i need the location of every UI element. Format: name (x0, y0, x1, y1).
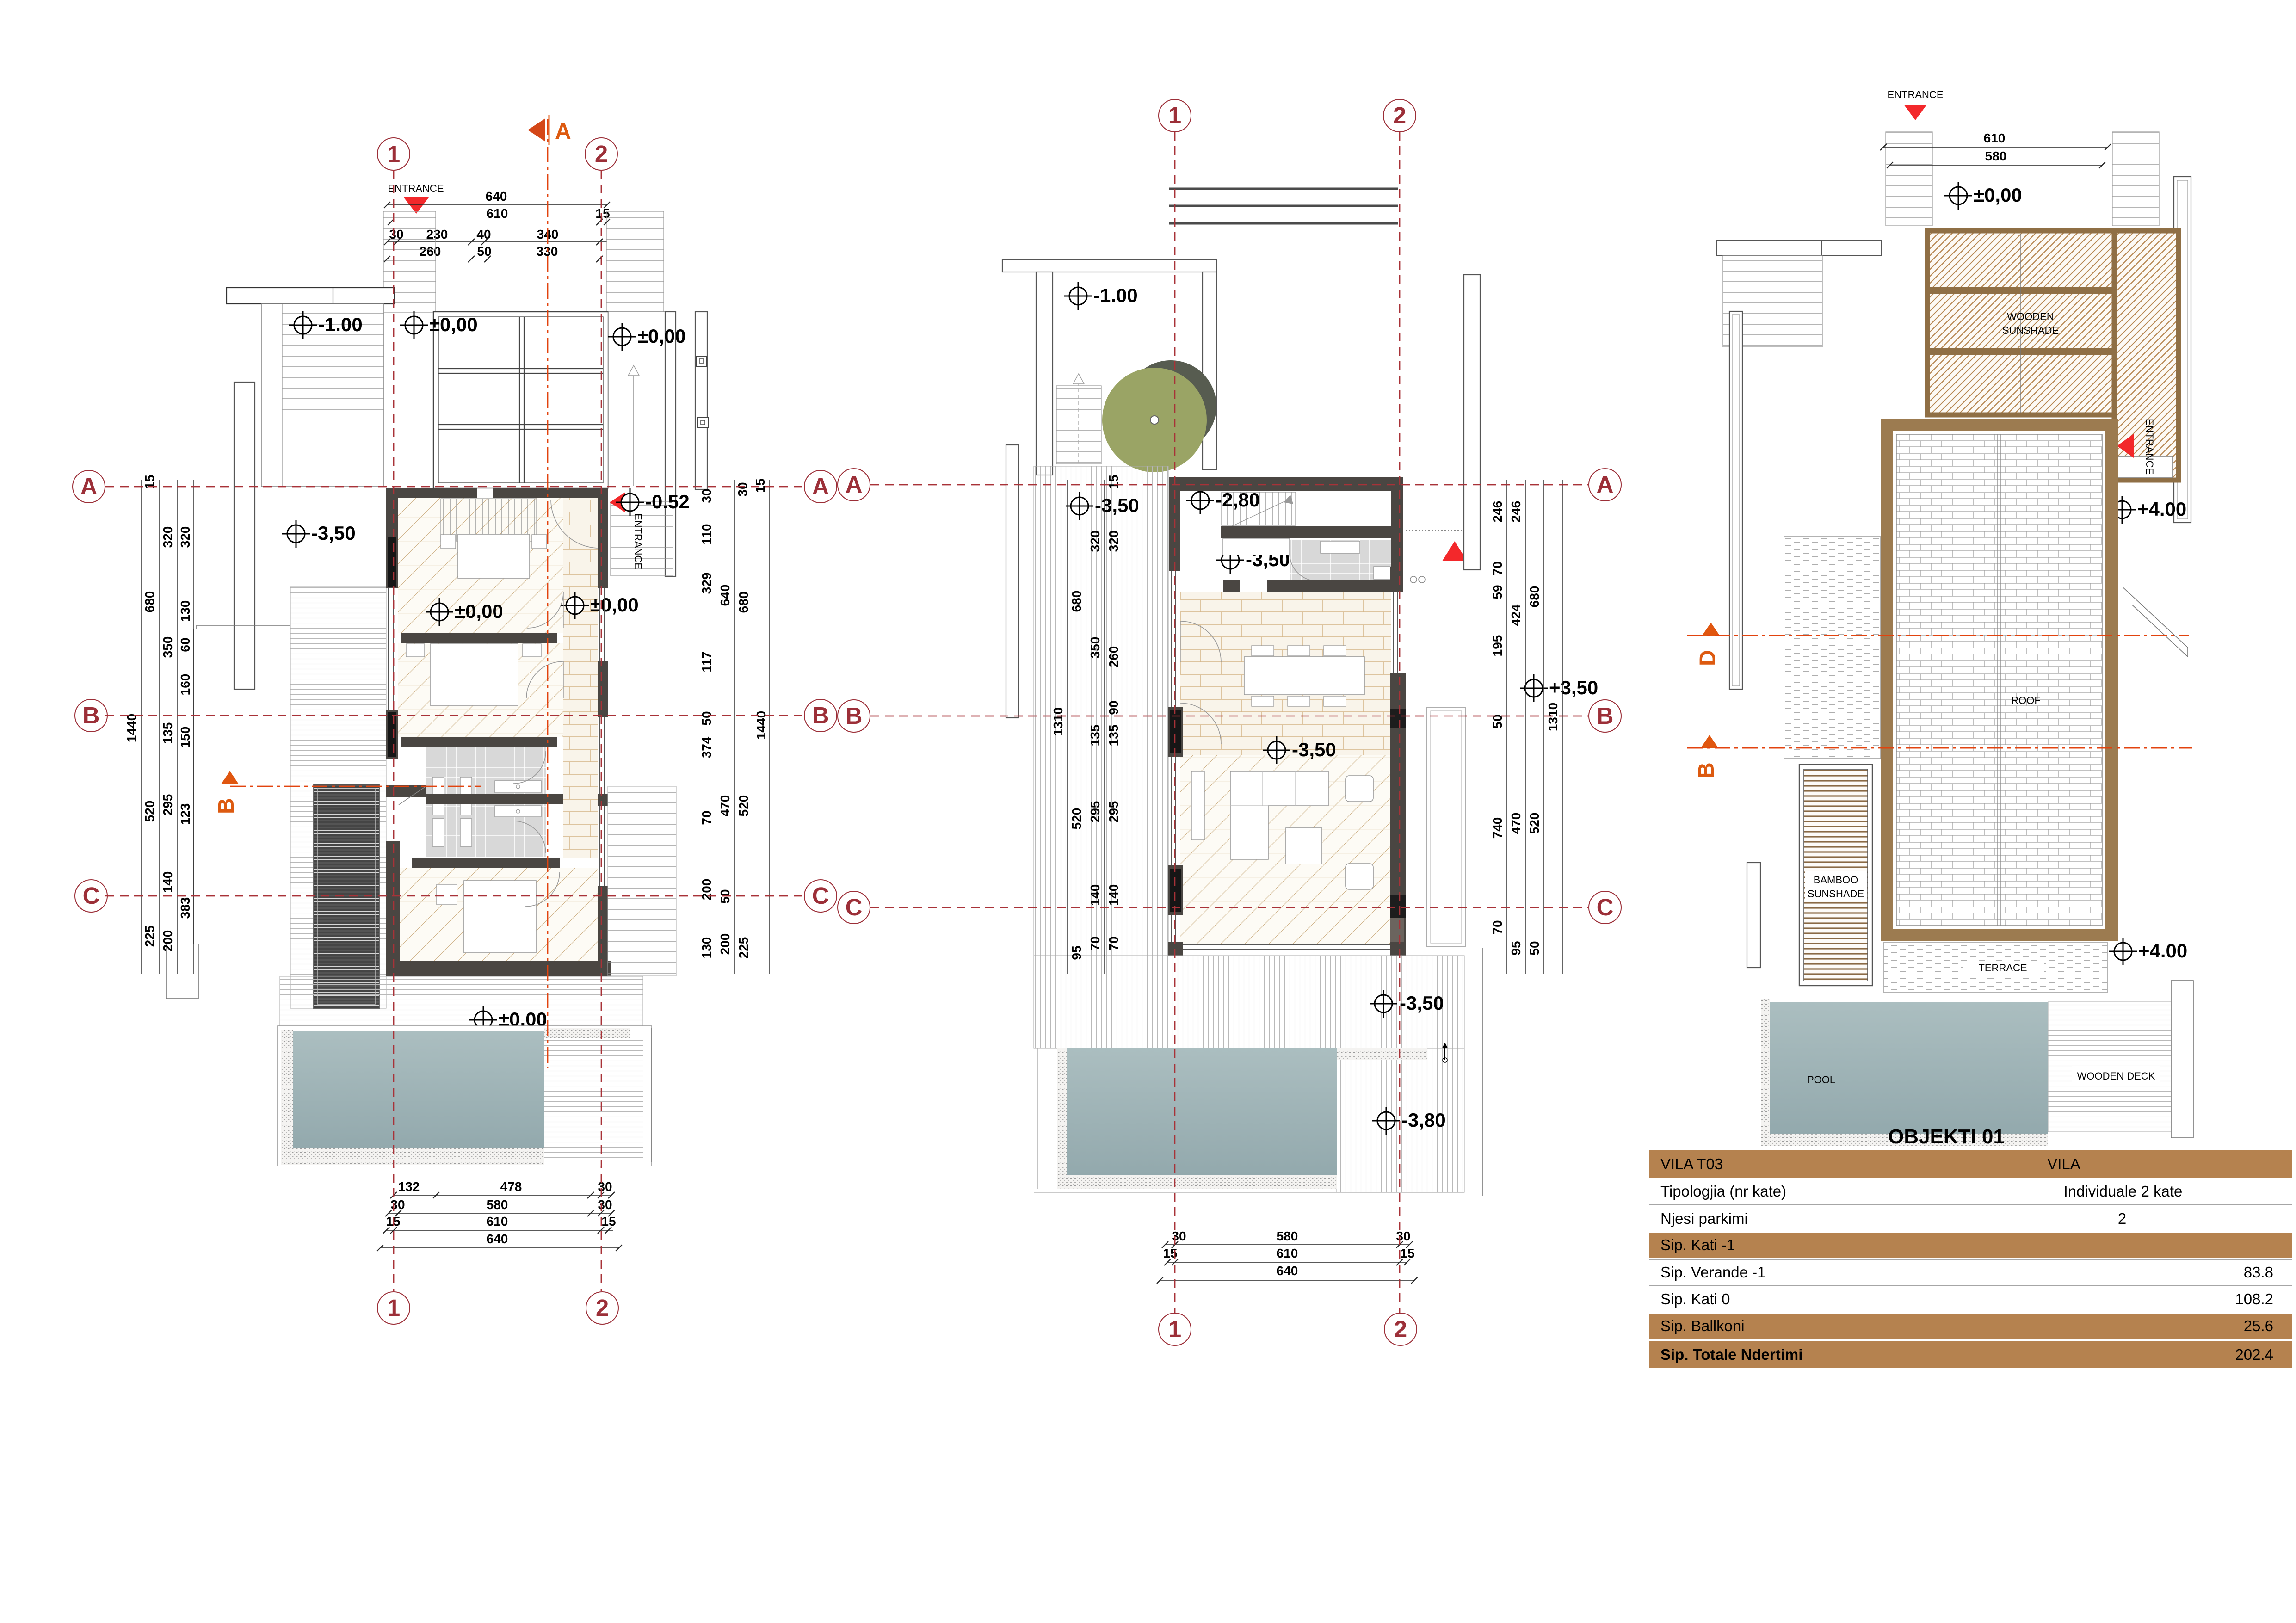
svg-text:1310: 1310 (1051, 707, 1065, 736)
svg-text:70: 70 (1490, 920, 1505, 934)
svg-text:117: 117 (699, 651, 714, 672)
svg-text:C: C (846, 894, 863, 920)
svg-text:320: 320 (1088, 531, 1102, 552)
svg-text:140: 140 (1106, 884, 1121, 906)
svg-text:+4.00: +4.00 (2138, 940, 2187, 962)
svg-text:50: 50 (699, 711, 714, 725)
svg-text:40: 40 (476, 227, 491, 241)
svg-text:30: 30 (598, 1179, 612, 1194)
svg-text:C: C (1597, 894, 1614, 920)
svg-text:OBJEKTI 01: OBJEKTI 01 (1888, 1125, 2005, 1148)
svg-text:95: 95 (1509, 941, 1523, 955)
svg-text:150: 150 (178, 727, 192, 748)
svg-text:580: 580 (487, 1197, 508, 1212)
svg-text:VILA: VILA (2047, 1155, 2080, 1173)
svg-text:202.4: 202.4 (2235, 1346, 2273, 1363)
svg-text:2: 2 (596, 1295, 609, 1321)
svg-text:-1.00: -1.00 (1093, 284, 1138, 306)
svg-text:200: 200 (699, 879, 714, 901)
svg-text:70: 70 (1490, 561, 1505, 575)
svg-text:B: B (846, 703, 863, 729)
svg-text:-3,50: -3,50 (1400, 992, 1444, 1014)
svg-text:A: A (555, 119, 571, 144)
svg-text:520: 520 (1527, 813, 1542, 834)
svg-text:640: 640 (486, 189, 507, 204)
svg-text:680: 680 (142, 591, 157, 613)
svg-text:160: 160 (178, 674, 192, 696)
svg-text:ROOF: ROOF (2011, 695, 2041, 706)
svg-text:Sip. Kati 0: Sip. Kati 0 (1660, 1290, 1730, 1308)
svg-text:VILA T03: VILA T03 (1660, 1155, 1723, 1173)
svg-text:B: B (1694, 762, 1719, 778)
svg-text:135: 135 (160, 722, 175, 744)
svg-text:1440: 1440 (124, 714, 139, 742)
svg-text:-3,50: -3,50 (311, 522, 356, 544)
svg-text:Sip. Ballkoni: Sip. Ballkoni (1660, 1317, 1745, 1334)
svg-text:2: 2 (2118, 1210, 2126, 1227)
svg-text:ENTRANCE: ENTRANCE (632, 513, 644, 569)
svg-text:WOODEN: WOODEN (2007, 311, 2054, 322)
svg-text:A: A (80, 473, 98, 500)
svg-text:520: 520 (142, 801, 157, 822)
svg-text:±0,00: ±0,00 (1974, 184, 2022, 206)
svg-text:478: 478 (500, 1179, 522, 1194)
svg-text:B: B (812, 702, 829, 728)
svg-text:+4.00: +4.00 (2137, 498, 2186, 520)
svg-text:Sip. Kati -1: Sip. Kati -1 (1660, 1236, 1735, 1253)
svg-text:Tipologjia (nr kate): Tipologjia (nr kate) (1660, 1183, 1786, 1200)
svg-text:132: 132 (398, 1179, 420, 1194)
svg-text:740: 740 (1490, 817, 1505, 839)
svg-text:ENTRANCE: ENTRANCE (2144, 419, 2155, 475)
svg-text:140: 140 (1088, 884, 1102, 906)
svg-text:329: 329 (699, 573, 714, 594)
svg-text:350: 350 (160, 636, 175, 658)
svg-text:130: 130 (178, 600, 192, 622)
svg-text:50: 50 (477, 244, 491, 259)
svg-text:123: 123 (178, 803, 192, 825)
svg-text:25.6: 25.6 (2244, 1317, 2273, 1334)
svg-text:15: 15 (1106, 475, 1121, 489)
svg-text:B: B (1597, 703, 1614, 729)
svg-text:30: 30 (598, 1197, 612, 1212)
svg-text:B: B (83, 702, 100, 728)
svg-text:90: 90 (1106, 700, 1121, 715)
svg-text:470: 470 (718, 795, 732, 817)
svg-text:70: 70 (1088, 936, 1102, 950)
svg-text:195: 195 (1490, 635, 1505, 657)
svg-text:1: 1 (387, 141, 400, 167)
svg-text:2: 2 (1393, 102, 1406, 129)
svg-text:C: C (812, 882, 829, 909)
svg-text:60: 60 (178, 637, 192, 652)
svg-text:30: 30 (699, 488, 714, 503)
svg-text:200: 200 (718, 933, 732, 955)
svg-text:2: 2 (1394, 1316, 1407, 1342)
svg-text:295: 295 (160, 794, 175, 816)
svg-text:30: 30 (1172, 1229, 1186, 1243)
svg-text:A: A (812, 473, 829, 500)
svg-text:70: 70 (699, 810, 714, 825)
svg-text:610: 610 (487, 206, 508, 221)
svg-text:610: 610 (1984, 131, 2006, 145)
svg-text:59: 59 (1490, 585, 1505, 599)
svg-text:470: 470 (1509, 813, 1523, 834)
svg-text:320: 320 (178, 526, 192, 548)
svg-text:Njesi parkimi: Njesi parkimi (1660, 1210, 1748, 1227)
svg-text:±0,00: ±0,00 (590, 594, 639, 616)
svg-text:±0,00: ±0,00 (455, 600, 503, 622)
svg-text:295: 295 (1106, 801, 1121, 823)
svg-text:580: 580 (1277, 1229, 1298, 1243)
svg-text:640: 640 (718, 585, 732, 606)
svg-text:200: 200 (160, 930, 175, 952)
svg-text:-3,50: -3,50 (1095, 494, 1139, 516)
svg-text:-3,50: -3,50 (1292, 739, 1336, 760)
svg-text:-2,80: -2,80 (1216, 489, 1260, 511)
svg-text:-1.00: -1.00 (318, 314, 363, 335)
svg-text:1: 1 (1168, 102, 1181, 129)
svg-text:110: 110 (699, 524, 714, 544)
svg-text:15: 15 (753, 478, 767, 493)
svg-text:130: 130 (699, 937, 714, 959)
svg-text:680: 680 (736, 592, 751, 613)
svg-text:Sip. Totale Ndertimi: Sip. Totale Ndertimi (1660, 1346, 1802, 1363)
svg-text:83.8: 83.8 (2244, 1264, 2273, 1281)
svg-text:383: 383 (178, 897, 192, 919)
svg-text:260: 260 (1106, 646, 1121, 668)
svg-text:30: 30 (735, 482, 750, 496)
svg-text:1310: 1310 (1546, 703, 1560, 731)
svg-text:225: 225 (142, 926, 157, 947)
svg-text:520: 520 (1069, 808, 1084, 830)
svg-text:WOODEN DECK: WOODEN DECK (2077, 1070, 2155, 1082)
svg-text:SUNSHADE: SUNSHADE (1808, 888, 1864, 900)
svg-text:520: 520 (736, 795, 751, 817)
svg-text:246: 246 (1509, 501, 1523, 523)
svg-text:B: B (214, 798, 239, 814)
svg-text:30: 30 (390, 1197, 405, 1212)
svg-text:C: C (83, 882, 100, 909)
svg-text:295: 295 (1088, 801, 1102, 823)
svg-text:ENTRANCE: ENTRANCE (388, 183, 444, 194)
svg-text:Sip. Verande -1: Sip. Verande -1 (1660, 1264, 1766, 1281)
svg-text:30: 30 (1396, 1229, 1410, 1243)
svg-text:225: 225 (736, 937, 751, 959)
svg-text:610: 610 (487, 1214, 508, 1228)
svg-text:Individuale 2 kate: Individuale 2 kate (2064, 1183, 2183, 1200)
svg-text:680: 680 (1527, 586, 1542, 608)
svg-text:374: 374 (699, 736, 714, 758)
svg-text:±0,00: ±0,00 (429, 314, 478, 335)
svg-text:±0,00: ±0,00 (637, 325, 686, 347)
svg-text:1: 1 (387, 1295, 400, 1321)
svg-text:610: 610 (1277, 1246, 1298, 1260)
svg-text:580: 580 (1985, 149, 2007, 163)
svg-text:BAMBOO: BAMBOO (1814, 874, 1858, 886)
svg-text:+3,50: +3,50 (1549, 677, 1598, 698)
svg-text:D: D (1696, 650, 1720, 666)
svg-text:320: 320 (160, 526, 175, 548)
svg-text:1: 1 (1168, 1316, 1181, 1342)
svg-text:350: 350 (1088, 637, 1102, 659)
svg-text:15: 15 (1400, 1246, 1414, 1260)
svg-text:70: 70 (1106, 936, 1121, 950)
svg-text:135: 135 (1088, 725, 1102, 747)
svg-text:640: 640 (487, 1232, 508, 1246)
svg-text:SUNSHADE: SUNSHADE (2002, 325, 2059, 336)
svg-text:135: 135 (1106, 725, 1121, 747)
svg-text:ENTRANCE: ENTRANCE (1887, 89, 1943, 100)
svg-text:320: 320 (1106, 531, 1121, 552)
svg-text:640: 640 (1277, 1264, 1298, 1278)
svg-text:246: 246 (1490, 501, 1505, 523)
svg-text:95: 95 (1069, 945, 1084, 960)
svg-text:424: 424 (1509, 604, 1523, 626)
svg-text:TERRACE: TERRACE (1978, 962, 2027, 974)
svg-text:2: 2 (595, 141, 608, 167)
svg-text:140: 140 (160, 871, 175, 893)
svg-text:POOL: POOL (1807, 1074, 1835, 1086)
svg-text:-3,80: -3,80 (1401, 1109, 1446, 1131)
svg-text:-0.52: -0.52 (645, 491, 690, 512)
svg-text:680: 680 (1069, 591, 1084, 612)
svg-text:50: 50 (1527, 941, 1542, 955)
svg-text:A: A (846, 471, 863, 498)
svg-text:108.2: 108.2 (2235, 1290, 2273, 1308)
svg-text:A: A (1597, 471, 1614, 498)
